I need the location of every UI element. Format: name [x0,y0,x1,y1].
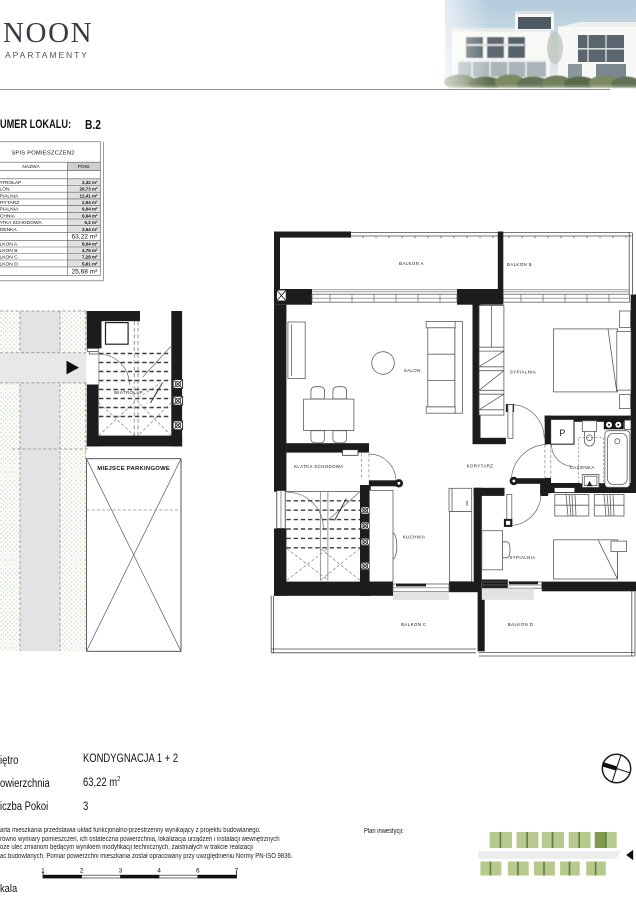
svg-text:6: 6 [196,868,200,875]
svg-text:BALKON B: BALKON B [507,262,532,267]
svg-text:P: P [559,428,565,438]
svg-text:BALKON C: BALKON C [401,622,426,627]
svg-text:2: 2 [80,868,84,875]
svg-text:KUCHNIA: KUCHNIA [403,534,426,539]
svg-text:SYPIALNIA: SYPIALNIA [509,555,535,560]
svg-text:BALKON D: BALKON D [508,622,533,627]
svg-text:3: 3 [119,868,123,875]
svg-text:SALON: SALON [404,368,421,373]
svg-text:4: 4 [157,868,161,875]
svg-text:ŁAZIENKA: ŁAZIENKA [570,465,594,470]
svg-text:KORYTARZ: KORYTARZ [467,464,494,469]
svg-text:WIATROŁAP: WIATROŁAP [114,390,143,395]
svg-text:BALKON A: BALKON A [399,261,424,266]
svg-text:xxx: xxx [465,500,469,506]
svg-text:MIEJSCE PARKINGOWE: MIEJSCE PARKINGOWE [97,466,170,472]
svg-text:KLATKA SCHODOWA: KLATKA SCHODOWA [294,464,344,469]
svg-text:SYPIALNIA: SYPIALNIA [510,369,536,374]
